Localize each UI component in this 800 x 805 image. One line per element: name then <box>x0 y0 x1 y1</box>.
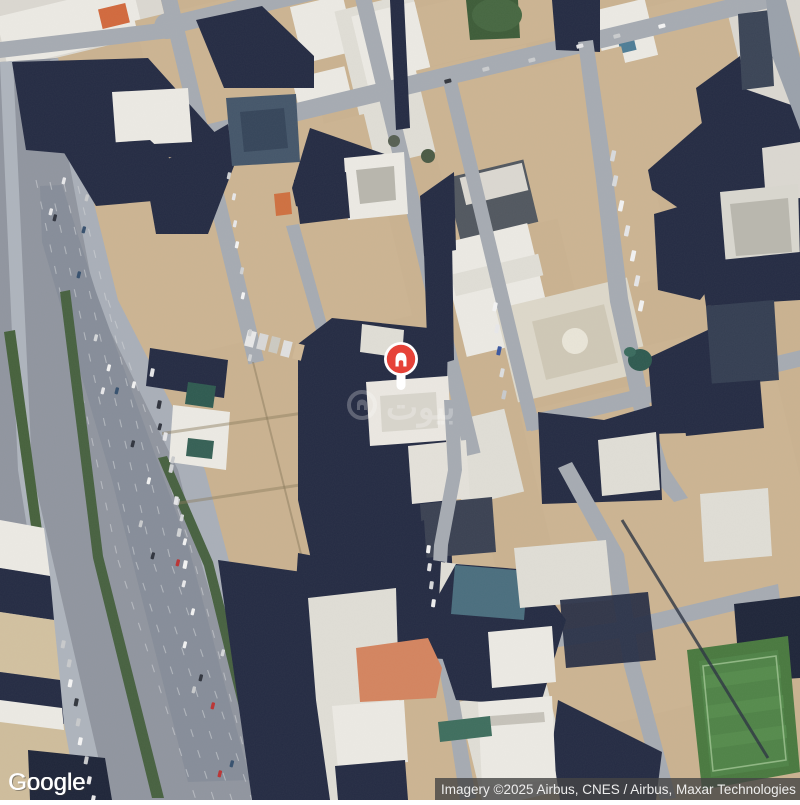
svg-text:Imagery ©2025 Airbus, CNES / A: Imagery ©2025 Airbus, CNES / Airbus, Max… <box>441 782 796 797</box>
svg-text:Google: Google <box>8 769 85 796</box>
svg-text:بيوت: بيوت <box>386 389 455 428</box>
